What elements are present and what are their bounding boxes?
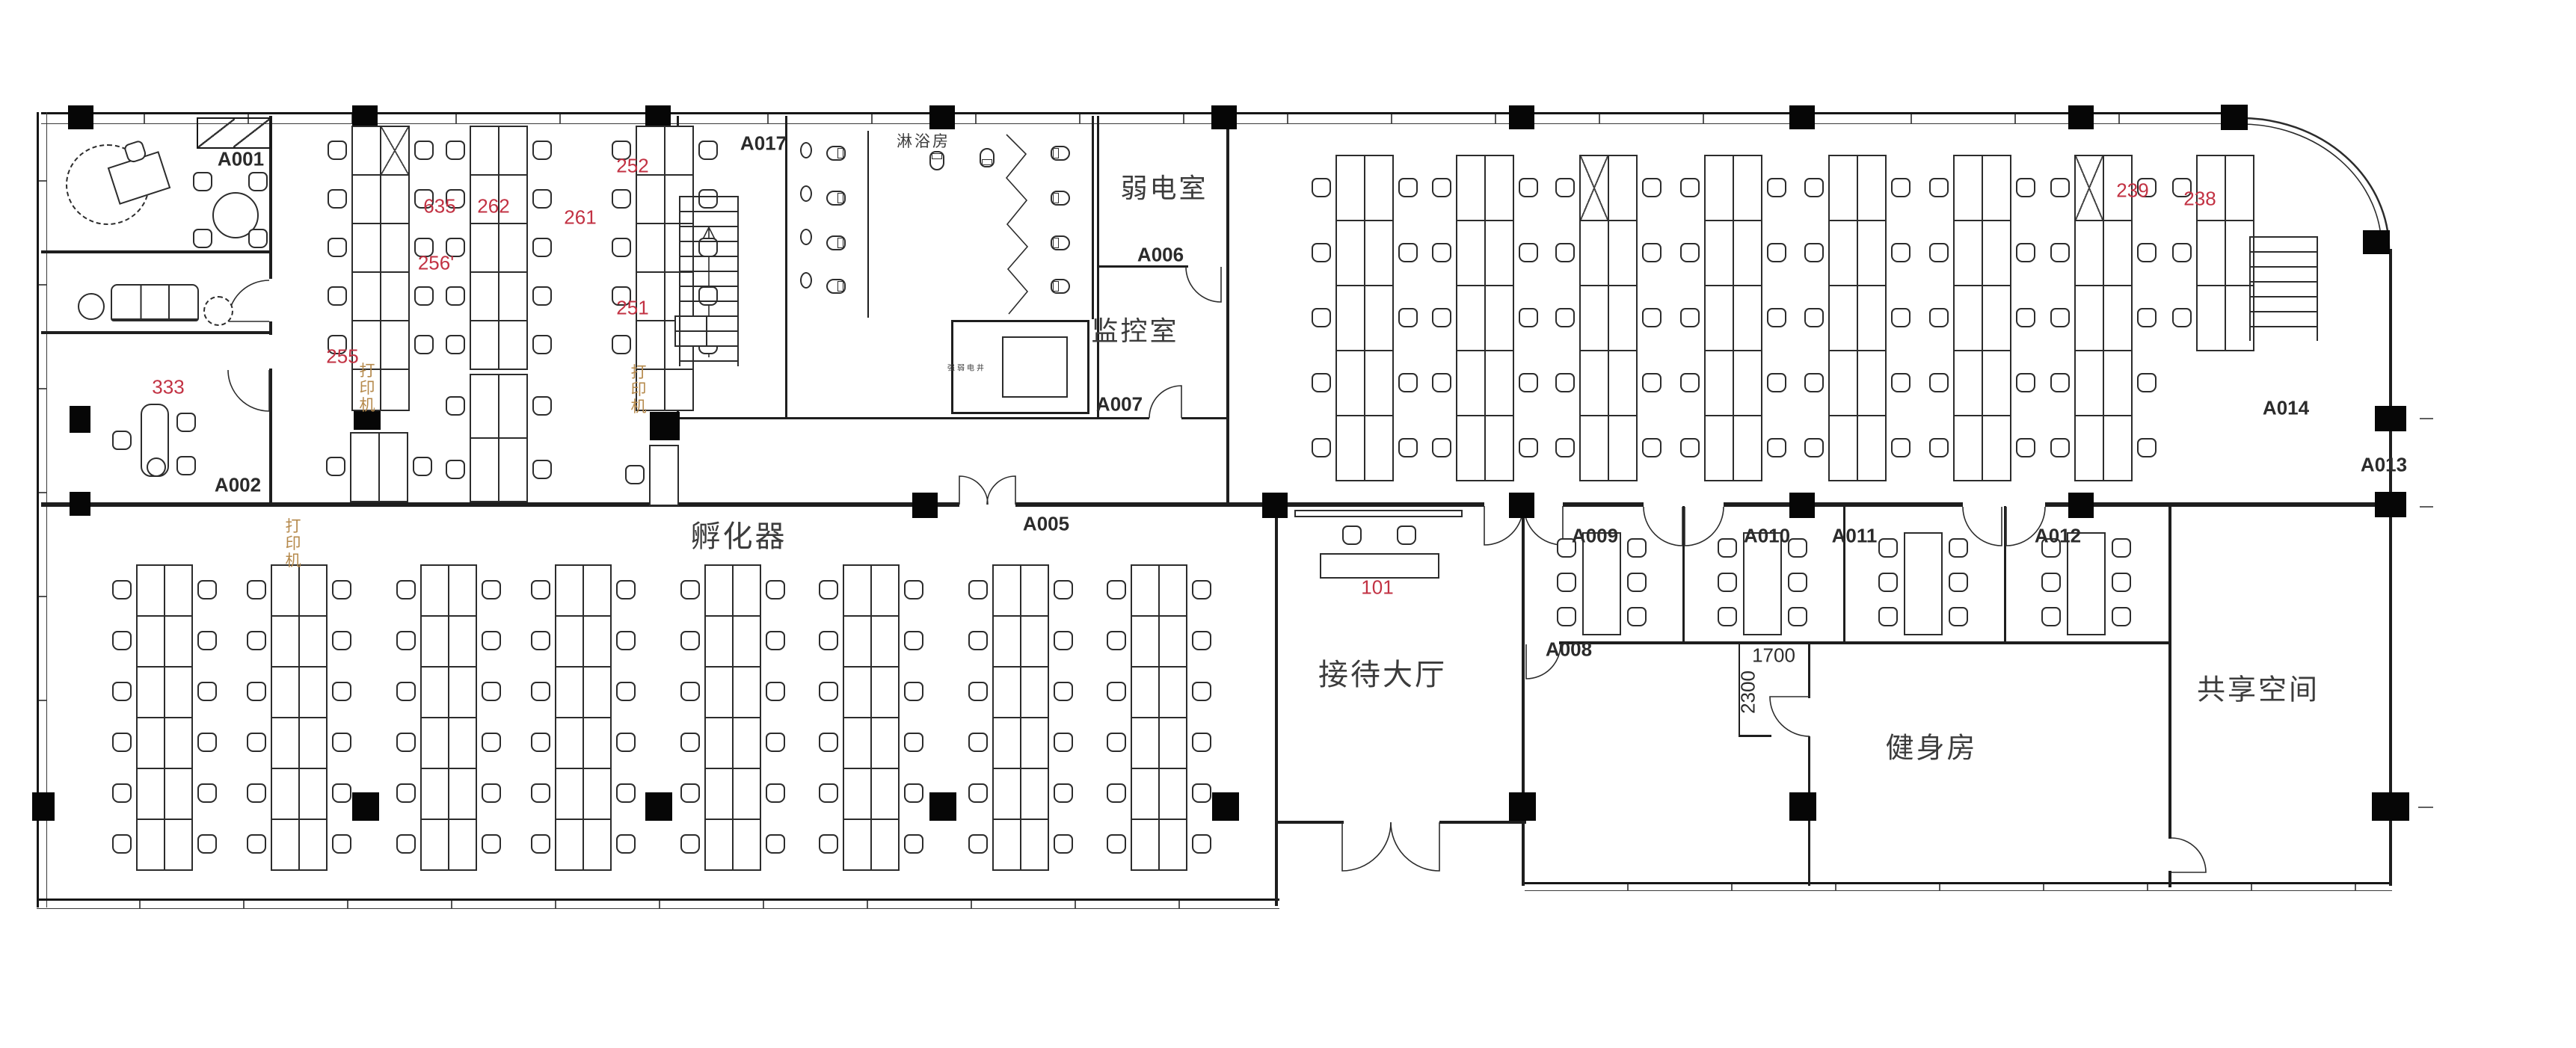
chair: [1398, 308, 1418, 327]
desk: [555, 666, 584, 718]
desk: [298, 768, 328, 820]
chair: [326, 457, 345, 476]
dimension-label: 2300: [1737, 671, 1760, 714]
column: [2375, 492, 2406, 517]
desk: [1608, 285, 1638, 351]
chair: [482, 733, 501, 752]
chair: [1804, 308, 1824, 327]
chair: [1054, 580, 1073, 599]
chair: [531, 733, 550, 752]
arc-path: [1342, 822, 1391, 871]
desk: [843, 768, 872, 820]
chair: [904, 733, 923, 752]
column: [70, 406, 90, 433]
desk: [732, 819, 761, 871]
desk: [1335, 350, 1365, 416]
chair: [2137, 243, 2157, 262]
column: [1789, 792, 1816, 821]
column: [32, 792, 55, 821]
seat-number-label: 262: [477, 195, 509, 218]
desk: [843, 666, 872, 718]
desk: [378, 432, 408, 502]
desk: [136, 615, 165, 668]
chair: [616, 783, 636, 803]
chair: [332, 733, 351, 752]
desk: [1733, 220, 1762, 286]
chair: [1878, 607, 1898, 626]
desk: [1335, 220, 1365, 286]
dimension-label: 1700: [1752, 644, 1795, 668]
chair: [112, 580, 132, 599]
room-code-label: A007: [1096, 393, 1143, 416]
chair: [1557, 573, 1576, 592]
chair: [1642, 308, 1662, 327]
column: [645, 792, 672, 821]
desk: [2196, 220, 2226, 286]
desk: [470, 126, 499, 176]
reception-desk: [1320, 553, 1439, 579]
desk: [448, 717, 477, 769]
desk: [2074, 350, 2104, 416]
chair: [332, 834, 351, 854]
desk: [1335, 155, 1365, 221]
desk: [380, 174, 410, 224]
chair: [414, 141, 434, 160]
desk: [1131, 819, 1160, 871]
desk: [498, 271, 528, 321]
column: [1509, 105, 1534, 129]
chair: [766, 631, 785, 650]
chair: [446, 286, 465, 306]
desk: [470, 374, 499, 439]
chair: [197, 733, 217, 752]
chair: [1891, 308, 1911, 327]
chair: [531, 783, 550, 803]
room-name-label: 孵化器: [691, 512, 787, 555]
chair: [1555, 373, 1575, 392]
chair: [248, 229, 268, 248]
chair: [904, 682, 923, 701]
desk: [870, 666, 900, 718]
seat-number-label: 333: [152, 376, 184, 399]
chair: [193, 172, 212, 191]
chair: [680, 682, 700, 701]
chair: [1192, 783, 1211, 803]
desk: [1982, 350, 2011, 416]
chair: [1788, 573, 1807, 592]
desk: [2103, 350, 2133, 416]
desk: [164, 666, 193, 718]
chair: [197, 631, 217, 650]
arc-path: [1770, 697, 1810, 736]
chair: [1929, 308, 1949, 327]
chair: [968, 580, 988, 599]
desk: [649, 445, 679, 506]
chair: [1627, 538, 1647, 558]
chair: [531, 682, 550, 701]
seat-number-label: 252: [616, 155, 648, 178]
chair: [968, 733, 988, 752]
desk: [1704, 155, 1734, 221]
chair: [1054, 631, 1073, 650]
seat-number-label: 251: [616, 297, 648, 320]
arc-path: [959, 476, 988, 505]
chair: [2137, 308, 2157, 327]
entry-hatch: [197, 117, 271, 149]
round-furniture: [203, 296, 233, 326]
seat-number-label: 238: [2183, 188, 2216, 211]
desk: [164, 768, 193, 820]
chair: [482, 580, 501, 599]
chair: [968, 682, 988, 701]
desk: [1857, 285, 1887, 351]
toilet-icon: [826, 279, 846, 294]
desk: [1608, 155, 1638, 221]
desk: [1020, 717, 1049, 769]
chair: [248, 172, 268, 191]
desk: [1857, 220, 1887, 286]
chair: [819, 631, 838, 650]
chair: [766, 733, 785, 752]
desk: [1982, 415, 2011, 481]
toilet-icon: [980, 148, 995, 167]
column: [352, 792, 379, 821]
desk: [1131, 564, 1160, 617]
chair: [1949, 573, 1968, 592]
printer-label: 打印机: [626, 364, 648, 416]
chair: [904, 631, 923, 650]
chair: [532, 286, 552, 306]
chair: [1642, 178, 1662, 197]
desk: [1704, 350, 1734, 416]
desk: [1158, 666, 1187, 718]
room-code-label: A001: [218, 148, 264, 171]
chair: [1519, 438, 1538, 457]
chair: [332, 580, 351, 599]
desk: [664, 126, 694, 176]
chair: [2016, 308, 2035, 327]
chair: [2172, 243, 2192, 262]
chair: [1642, 438, 1662, 457]
desk: [582, 564, 612, 617]
desk: [380, 271, 410, 321]
chair: [197, 580, 217, 599]
chair: [414, 335, 434, 354]
chair: [1192, 733, 1211, 752]
chair: [2137, 438, 2157, 457]
desk: [448, 564, 477, 617]
desk: [448, 819, 477, 871]
desk: [582, 615, 612, 668]
desk: [1158, 819, 1187, 871]
room-code-label: A010: [1744, 525, 1790, 548]
desk: [298, 615, 328, 668]
chair: [1929, 178, 1949, 197]
chair: [1312, 308, 1331, 327]
chair: [532, 460, 552, 479]
chair: [1398, 373, 1418, 392]
seat-number-label: 101: [1361, 576, 1393, 599]
room-code-label: A012: [2035, 525, 2081, 548]
desk: [1579, 155, 1609, 221]
desk: [420, 666, 449, 718]
chair: [396, 631, 416, 650]
elevator-cab: [1002, 336, 1068, 398]
chair: [482, 631, 501, 650]
chair: [1718, 607, 1737, 626]
desk: [992, 819, 1021, 871]
desk: [664, 369, 694, 411]
desk: [1857, 350, 1887, 416]
desk: [1456, 155, 1486, 221]
arc-path: [1391, 822, 1439, 871]
chair: [396, 783, 416, 803]
chair: [616, 682, 636, 701]
desk: [582, 768, 612, 820]
chair: [1432, 438, 1451, 457]
desk: [636, 174, 665, 224]
desk: [1704, 415, 1734, 481]
chair: [1804, 438, 1824, 457]
chair: [2016, 178, 2035, 197]
desk: [1131, 615, 1160, 668]
column: [1509, 493, 1534, 518]
chair: [1718, 573, 1737, 592]
chair: [1804, 243, 1824, 262]
desk: [1020, 768, 1049, 820]
chair: [1949, 538, 1968, 558]
floor-plan-canvas: A001A002A017A006A007A005A008A009A010A011…: [0, 0, 2576, 1048]
chair: [2172, 308, 2192, 327]
chair: [1788, 607, 1807, 626]
chair: [2050, 243, 2070, 262]
arc-path: [1006, 135, 1027, 314]
desk: [1456, 220, 1486, 286]
chair: [904, 783, 923, 803]
chair: [1107, 631, 1126, 650]
desk: [1484, 220, 1514, 286]
chair: [1555, 308, 1575, 327]
desk: [732, 768, 761, 820]
chair: [1107, 733, 1126, 752]
chair: [2041, 573, 2061, 592]
chair: [819, 682, 838, 701]
desk: [1364, 285, 1394, 351]
chair: [904, 580, 923, 599]
desk: [498, 437, 528, 502]
desk: [1335, 285, 1365, 351]
toilet-icon: [1051, 279, 1070, 294]
desk: [1484, 285, 1514, 351]
desk: [498, 126, 528, 176]
chair: [446, 460, 465, 479]
desk: [1484, 415, 1514, 481]
toilet-icon: [1051, 146, 1070, 161]
desk: [555, 615, 584, 668]
chair: [1788, 538, 1807, 558]
chair: [328, 238, 347, 257]
chair: [1718, 538, 1737, 558]
chair: [112, 783, 132, 803]
desk: [992, 666, 1021, 718]
desk: [704, 717, 734, 769]
arc-path: [1963, 507, 2002, 546]
desk: [1020, 615, 1049, 668]
chair: [1342, 525, 1362, 545]
column: [1789, 493, 1815, 518]
chair: [1929, 438, 1949, 457]
desk: [1953, 285, 1983, 351]
desk: [1733, 350, 1762, 416]
column: [1262, 493, 1288, 518]
desk: [1828, 285, 1858, 351]
chair: [197, 834, 217, 854]
chair: [1767, 243, 1786, 262]
desk: [271, 564, 300, 617]
chair: [1804, 373, 1824, 392]
desk: [1131, 768, 1160, 820]
seat-number-label: 256': [418, 252, 454, 275]
desk: [351, 126, 381, 176]
desk: [1704, 285, 1734, 351]
desk: [2196, 285, 2226, 351]
desk: [498, 374, 528, 439]
chair: [414, 286, 434, 306]
desk: [1953, 155, 1983, 221]
chair: [328, 141, 347, 160]
chair: [396, 733, 416, 752]
chair: [328, 189, 347, 209]
chair: [482, 783, 501, 803]
desk: [470, 271, 499, 321]
desk: [1456, 415, 1486, 481]
desk: [704, 564, 734, 617]
column: [70, 492, 90, 516]
chair: [396, 580, 416, 599]
chair: [1519, 243, 1538, 262]
chair: [247, 783, 266, 803]
chair: [197, 682, 217, 701]
desk: [380, 126, 410, 176]
desk: [448, 615, 477, 668]
desk: [582, 666, 612, 718]
toilet-icon: [929, 151, 944, 170]
desk: [136, 819, 165, 871]
chair: [193, 229, 212, 248]
chair: [1107, 682, 1126, 701]
desk: [271, 717, 300, 769]
column: [929, 105, 955, 129]
desk: [1020, 666, 1049, 718]
desk: [1828, 350, 1858, 416]
desk: [2103, 220, 2133, 286]
arc-path: [2171, 838, 2206, 872]
meeting-table: [1904, 532, 1943, 635]
desk: [704, 615, 734, 668]
desk: [2074, 155, 2104, 221]
chair: [328, 286, 347, 306]
desk: [1456, 350, 1486, 416]
chair: [1767, 308, 1786, 327]
arc-path: [228, 280, 269, 321]
round-furniture: [147, 457, 166, 477]
chair: [482, 682, 501, 701]
chair: [819, 580, 838, 599]
desk: [1857, 415, 1887, 481]
desk: [1158, 768, 1187, 820]
desk: [470, 437, 499, 502]
desk: [2074, 220, 2104, 286]
desk: [136, 717, 165, 769]
chair: [1312, 438, 1331, 457]
arc-path: [2241, 124, 2382, 250]
desk: [351, 174, 381, 224]
desk: [420, 768, 449, 820]
desk: [351, 271, 381, 321]
chair: [2050, 178, 2070, 197]
desk: [420, 717, 449, 769]
room-name-label: 弱电室: [1120, 167, 1208, 206]
desk: [448, 768, 477, 820]
desk: [298, 717, 328, 769]
meeting-table: [2067, 532, 2106, 635]
desk: [351, 223, 381, 273]
room-name-label: 接待大厅: [1318, 650, 1447, 694]
seat-number-label: 239: [2116, 179, 2148, 203]
chair: [532, 396, 552, 416]
chair: [1519, 308, 1538, 327]
chair: [612, 189, 631, 209]
desk: [420, 819, 449, 871]
sink-icon: [800, 142, 812, 158]
arc-path: [2418, 419, 2433, 807]
arc-path: [987, 476, 1015, 505]
chair: [1680, 373, 1700, 392]
chair: [1432, 373, 1451, 392]
room-code-label: A011: [1832, 525, 1878, 548]
room-code-label: A005: [1023, 513, 1069, 536]
chair: [766, 834, 785, 854]
small-room-label: 淋浴房: [897, 129, 950, 152]
desk: [555, 819, 584, 871]
desk: [1364, 155, 1394, 221]
desk: [498, 320, 528, 370]
column: [2363, 230, 2390, 254]
chair: [247, 733, 266, 752]
chair: [2112, 607, 2131, 626]
printer-label: 打印机: [280, 518, 303, 570]
chair: [112, 431, 132, 450]
desk: [1158, 615, 1187, 668]
desk: [380, 223, 410, 273]
chair: [1929, 373, 1949, 392]
desk: [992, 564, 1021, 617]
desk: [1158, 717, 1187, 769]
desk: [992, 717, 1021, 769]
chair: [2112, 573, 2131, 592]
seat-number-label: 635: [423, 195, 455, 218]
desk: [992, 768, 1021, 820]
desk: [2074, 285, 2104, 351]
chair: [616, 580, 636, 599]
chair: [247, 682, 266, 701]
chair: [1642, 243, 1662, 262]
sink-icon: [800, 185, 812, 202]
desk: [1579, 285, 1609, 351]
chair: [1891, 243, 1911, 262]
chair: [2050, 438, 2070, 457]
room-code-label: A013: [2361, 454, 2407, 477]
